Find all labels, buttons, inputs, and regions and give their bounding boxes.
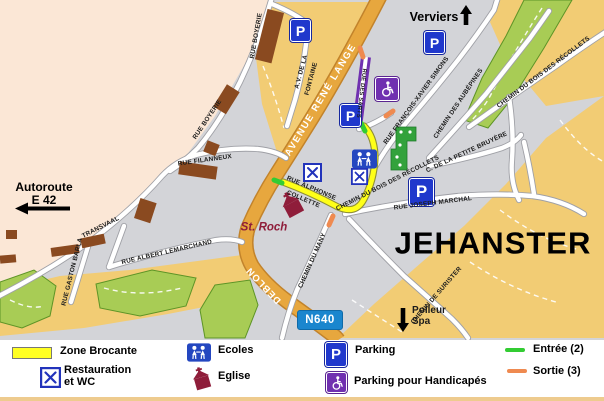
n640-road-badge: N640 (297, 310, 343, 330)
legend-zone-brocante-label: Zone Brocante (60, 346, 137, 357)
wheelchair-icon (378, 80, 396, 98)
parking-letter: P (416, 182, 427, 202)
legend-restauration-label-2: et WC (64, 377, 95, 388)
legend-parking-handicapes-label: Parking pour Handicapés (354, 376, 487, 387)
place-label-jehanster: JEHANSTER (395, 228, 592, 259)
legend-zone-brocante-swatch (12, 347, 52, 359)
parking-badge-verviers: P (424, 31, 445, 54)
parking-letter: P (430, 35, 439, 51)
verviers-arrow-icon (458, 4, 474, 26)
legend-eglise-label: Eglise (218, 371, 250, 382)
parking-letter: P (331, 346, 341, 363)
restaurant-icon-map-1 (303, 163, 322, 182)
handicap-icon-legend (326, 372, 347, 393)
place-label-e42: E 42 (32, 194, 57, 206)
legend-parking-label: Parking (355, 345, 395, 356)
place-label-spa: Spa (412, 317, 430, 327)
place-label-autoroute: Autoroute (15, 181, 72, 193)
place-label-polleur: Polleur (412, 306, 446, 316)
legend-ecoles-label: Ecoles (218, 345, 253, 356)
parking-badge-boyerie: P (290, 19, 311, 42)
n640-label: N640 (305, 314, 335, 326)
parking-icon-legend: P (325, 342, 347, 367)
legend-entree-swatch (505, 348, 525, 352)
jehanster-map-page: P P P P N640 RUE BOYERIE RUE BOYERIE A.V… (0, 0, 604, 401)
place-label-st-roch: St. Roch (241, 222, 288, 234)
map-edge-strip (0, 397, 604, 401)
school-icon-legend (187, 342, 211, 362)
polleur-arrow-icon (396, 307, 410, 333)
church-icon-legend (185, 363, 217, 395)
legend-sortie-swatch (507, 369, 527, 373)
restaurant-icon-map-2 (351, 168, 368, 185)
legend-sortie-label: Sortie (3) (533, 366, 581, 377)
parking-letter: P (296, 23, 305, 39)
restaurant-icon-legend (40, 367, 61, 388)
place-label-verviers: Verviers (410, 11, 459, 24)
handicap-parking-badge (375, 77, 399, 101)
school-icon-map (352, 149, 377, 169)
legend-restauration-label-1: Restauration (64, 365, 131, 376)
legend-entree-label: Entrée (2) (533, 344, 584, 355)
